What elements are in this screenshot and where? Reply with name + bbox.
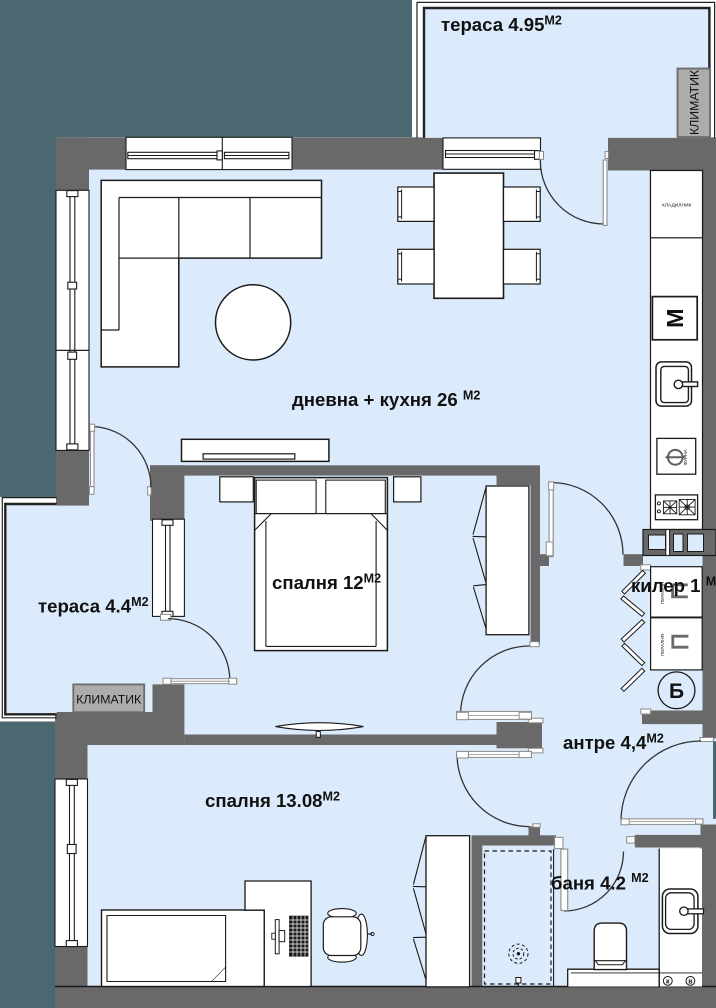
svg-text:к: к	[666, 979, 670, 986]
svg-text:ХЛАДИЛНИК: ХЛАДИЛНИК	[662, 203, 692, 209]
svg-text:М: М	[662, 308, 688, 328]
svg-text:ФУРНА: ФУРНА	[683, 448, 689, 465]
svg-text:Б: Б	[669, 680, 684, 703]
svg-text:килер 1 М2: килер 1 М2	[631, 575, 716, 597]
svg-text:КЛИМАТИК: КЛИМАТИК	[76, 693, 142, 707]
svg-text:ПЕРАЛНЯ: ПЕРАЛНЯ	[660, 634, 665, 656]
svg-text:дневна + кухня 26 М2: дневна + кухня 26 М2	[292, 389, 480, 411]
svg-text:в: в	[688, 979, 693, 986]
svg-text:КЛИМАТИК: КЛИМАТИК	[688, 69, 702, 135]
svg-text:спалня 13.08М2: спалня 13.08М2	[205, 790, 340, 812]
svg-text:тераса 4.95М2: тераса 4.95М2	[441, 14, 562, 36]
